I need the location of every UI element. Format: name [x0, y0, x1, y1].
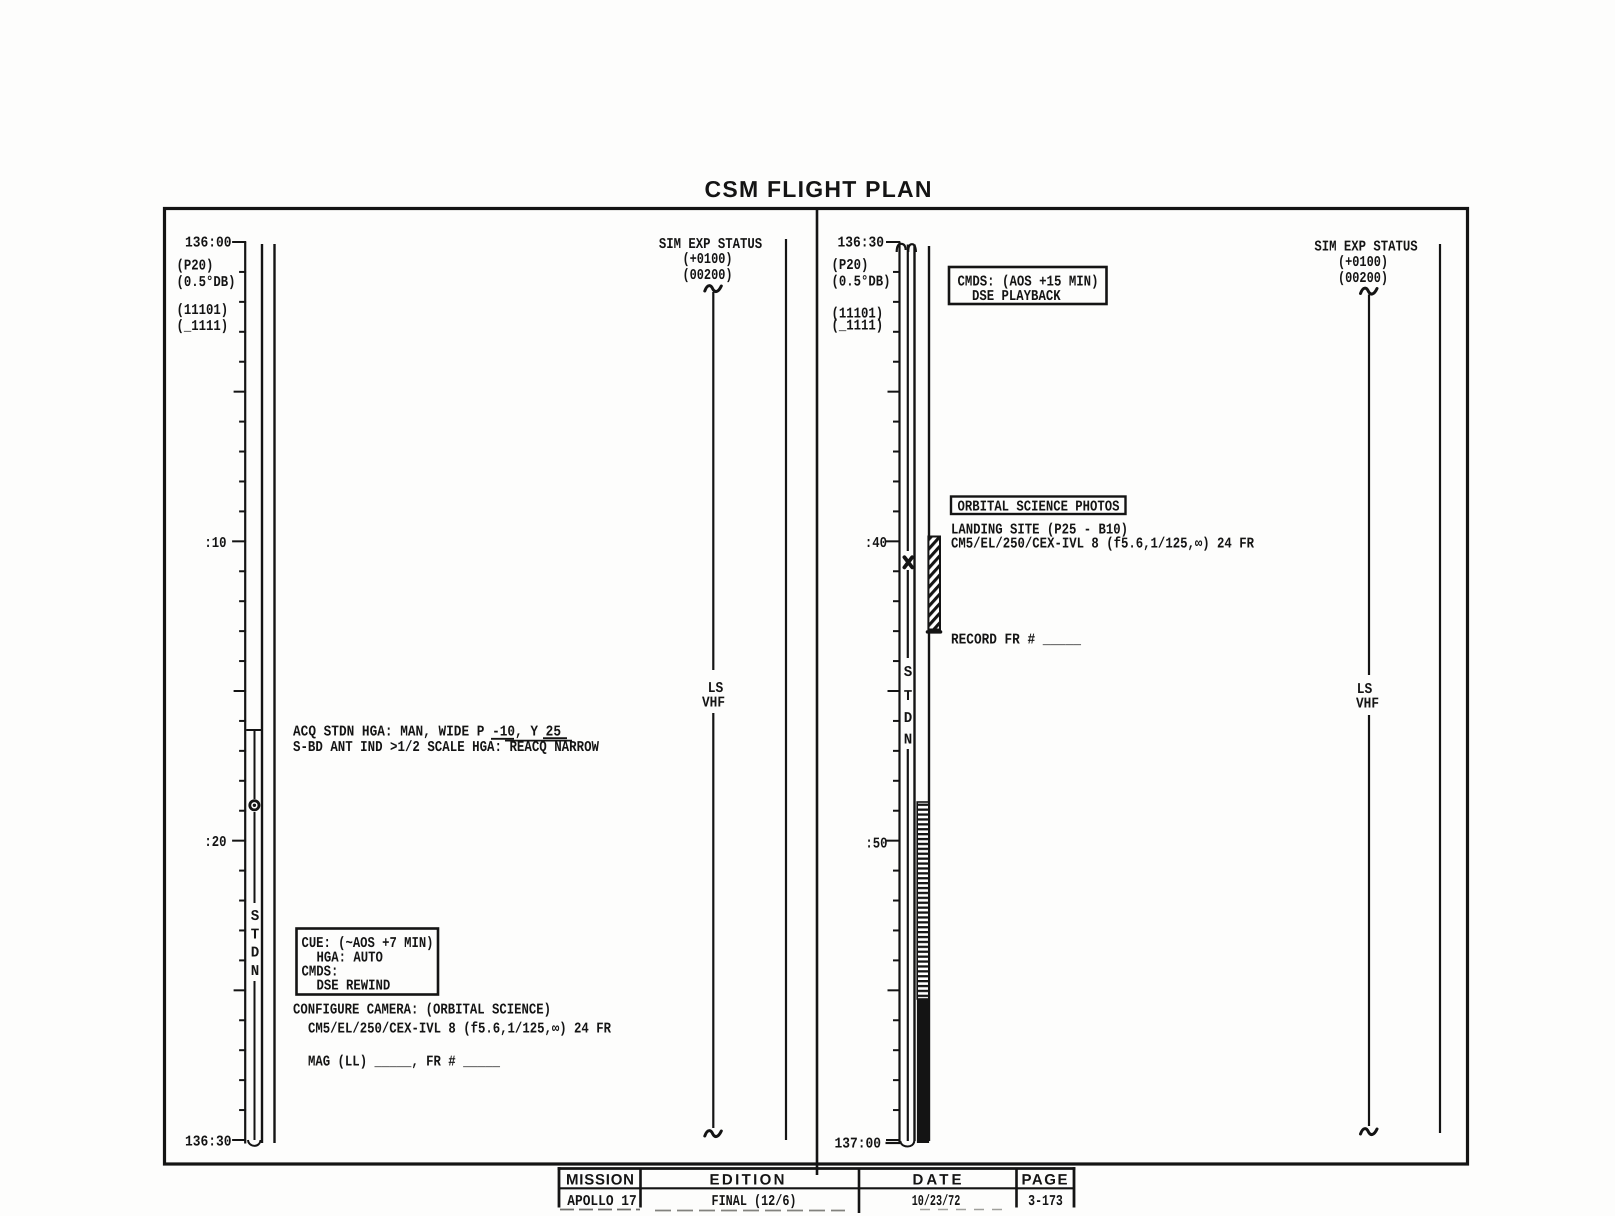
svg-text:DSE REWIND: DSE REWIND — [317, 978, 391, 995]
svg-text:S-BD ANT IND >1/2 SCALE HGA:: S-BD ANT IND >1/2 SCALE HGA: REACQ NARRO… — [293, 739, 599, 756]
svg-text:N: N — [251, 963, 260, 980]
svg-text:CSM FLIGHT PLAN: CSM FLIGHT PLAN — [705, 176, 932, 202]
svg-text:137:00: 137:00 — [835, 1136, 882, 1153]
svg-text:(P20): (P20) — [832, 257, 869, 274]
svg-text:S: S — [251, 908, 260, 925]
svg-text::20: :20 — [204, 834, 226, 851]
svg-text:S: S — [904, 664, 913, 681]
svg-text:(0.5°DB): (0.5°DB) — [832, 274, 891, 291]
svg-text::40: :40 — [865, 535, 887, 552]
svg-text:ACQ STDN HGA: MAN, WIDE P -10: ACQ STDN HGA: MAN, WIDE P -10, Y 25 — [293, 724, 561, 741]
svg-text:(+0100): (+0100) — [1338, 254, 1388, 271]
svg-text:D: D — [904, 710, 913, 727]
svg-text:(P20): (P20) — [177, 258, 214, 275]
svg-text:(00200): (00200) — [1338, 270, 1388, 287]
svg-text:10/23/72: 10/23/72 — [912, 1193, 961, 1210]
svg-text:CONFIGURE CAMERA: (ORBITAL SCI: CONFIGURE CAMERA: (ORBITAL SCIENCE) — [293, 1002, 551, 1019]
svg-text::10: :10 — [204, 535, 226, 552]
svg-text:136:30: 136:30 — [185, 1133, 232, 1150]
svg-text:DSE PLAYBACK: DSE PLAYBACK — [972, 288, 1061, 305]
svg-text:(_1111): (_1111) — [832, 318, 884, 335]
svg-text:3-173: 3-173 — [1028, 1193, 1063, 1210]
svg-text:136:00: 136:00 — [185, 235, 232, 252]
svg-text:(00200): (00200) — [683, 267, 733, 284]
svg-text:(0.5°DB): (0.5°DB) — [177, 274, 236, 291]
svg-text:SIM EXP STATUS: SIM EXP STATUS — [1314, 239, 1417, 256]
svg-text:(11101): (11101) — [177, 302, 229, 319]
svg-text:MAG (LL) _____, FR # _____: MAG (LL) _____, FR # _____ — [308, 1054, 501, 1071]
svg-text:FINAL (12/6): FINAL (12/6) — [712, 1193, 797, 1210]
svg-text:(_1111): (_1111) — [177, 318, 229, 335]
svg-text:T: T — [904, 688, 913, 705]
svg-text:RECORD FR # _____: RECORD FR # _____ — [951, 632, 1082, 649]
svg-text:VHF: VHF — [702, 695, 725, 712]
svg-text::50: :50 — [865, 836, 887, 853]
svg-text:CM5/EL/250/CEX-IVL 8 (f5.6,1/1: CM5/EL/250/CEX-IVL 8 (f5.6,1/125,∞) 24 F… — [951, 536, 1254, 553]
svg-text:ORBITAL SCIENCE PHOTOS: ORBITAL SCIENCE PHOTOS — [958, 499, 1120, 516]
svg-text:PAGE: PAGE — [1022, 1172, 1068, 1189]
svg-text:T: T — [251, 927, 260, 944]
svg-text:MISSION: MISSION — [566, 1172, 634, 1189]
svg-text:136:30: 136:30 — [838, 235, 885, 252]
svg-text:D: D — [251, 945, 260, 962]
svg-text:VHF: VHF — [1356, 696, 1379, 713]
svg-text:CM5/EL/250/CEX-IVL 8 (f5.6,1/1: CM5/EL/250/CEX-IVL 8 (f5.6,1/125,∞) 24 F… — [308, 1021, 611, 1038]
svg-text:APOLLO 17: APOLLO 17 — [567, 1193, 636, 1210]
svg-text:N: N — [904, 732, 913, 749]
svg-text:(+0100): (+0100) — [683, 251, 733, 268]
